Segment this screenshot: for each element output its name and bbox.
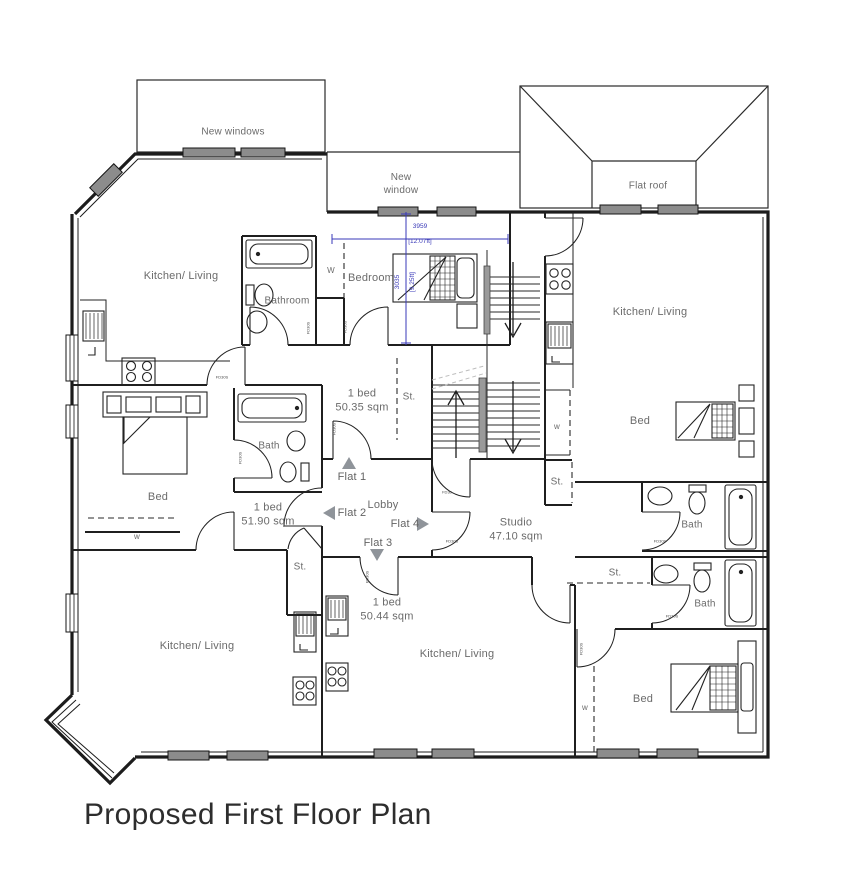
room-label-kitchen-living-bottom-middle: Kitchen/ Living (420, 647, 495, 661)
height-dimension-ft: [9.25ft] (409, 272, 416, 292)
outer-walls (46, 154, 768, 783)
flat4-label: Flat 4 (391, 517, 420, 531)
new-window-label: New window (384, 171, 419, 197)
staircase (432, 250, 540, 460)
flat3-label: Flat 3 (364, 536, 393, 550)
fire-door-tag: FD30S (332, 423, 337, 435)
flat2-left-arrow-icon (323, 506, 335, 520)
storage-label-bottom-right: St. (609, 567, 622, 580)
height-dimension-label: 3035 [9.25ft] (387, 272, 417, 292)
room-label-bed-bottom-right: Bed (633, 692, 653, 706)
wardrobe-label-right-flat: w (554, 422, 560, 432)
room-label-kitchen-living-top-left: Kitchen/ Living (144, 269, 219, 283)
roof-outlines (137, 80, 768, 212)
width-dimension-ft: [12.07ft] (408, 238, 432, 245)
page-title: Proposed First Floor Plan (84, 798, 432, 832)
fire-door-tag: FD30S (216, 375, 228, 380)
room-label-bath-left: Bath (258, 440, 279, 453)
floor-plan-drawing (0, 0, 844, 875)
wardrobe-label-bed-bottom-right: w (582, 703, 588, 713)
window-symbols (66, 148, 698, 760)
width-dimension-mm: 3959 (413, 224, 427, 231)
fire-door-tag: FD30S (666, 614, 678, 619)
fire-door-tag: FD30S (446, 539, 458, 544)
flat3-area-label: 1 bed 50.44 sqm (360, 596, 413, 625)
interior-walls (72, 212, 768, 757)
floor-plan-canvas: New windows New window Flat roof Kitchen… (0, 0, 844, 875)
flat1-area-label: 1 bed 50.35 sqm (335, 387, 388, 416)
room-label-bathroom: Bathroom (265, 295, 310, 308)
fire-door-tag: FD30S (654, 539, 666, 544)
fire-door-tag: FD30S (306, 322, 311, 334)
room-label-bath-right-upper: Bath (681, 519, 702, 532)
flat3-down-arrow-icon (370, 549, 384, 561)
storage-label-mid: St. (551, 476, 564, 489)
flat4-area-label: Studio 47.10 sqm (489, 516, 542, 545)
room-label-lobby: Lobby (368, 498, 399, 512)
flat-roof-label: Flat roof (629, 180, 667, 193)
storage-label-left: St. (294, 561, 307, 574)
fixtures (80, 212, 756, 733)
width-dimension-label: 3959 [12.07ft] (408, 216, 432, 246)
fire-door-tag-short: FD30 (442, 490, 452, 495)
new-windows-label: New windows (201, 126, 264, 139)
wardrobe-label-bed-left: w (134, 532, 140, 542)
height-dimension-mm: 3035 (395, 275, 402, 289)
fire-door-tag: FD30S (579, 643, 584, 655)
flat2-area-label: 1 bed 51.90 sqm (241, 501, 294, 530)
wardrobe-label-bedroom-top: W (327, 266, 335, 276)
fire-door-tag: FD30S (365, 571, 370, 583)
flat2-label: Flat 2 (338, 506, 367, 520)
flat1-up-arrow-icon (342, 457, 356, 469)
fire-door-tag: FD30S (343, 321, 348, 333)
fire-door-tag: FD30S (238, 452, 243, 464)
room-label-kitchen-living-right: Kitchen/ Living (613, 305, 688, 319)
room-label-bath-right-lower: Bath (694, 598, 715, 611)
flat1-label: Flat 1 (338, 470, 367, 484)
room-label-kitchen-living-bottom-left: Kitchen/ Living (160, 639, 235, 653)
room-label-bed-left: Bed (148, 490, 168, 504)
storage-label-hall: St. (403, 391, 416, 404)
room-label-bed-right: Bed (630, 414, 650, 428)
